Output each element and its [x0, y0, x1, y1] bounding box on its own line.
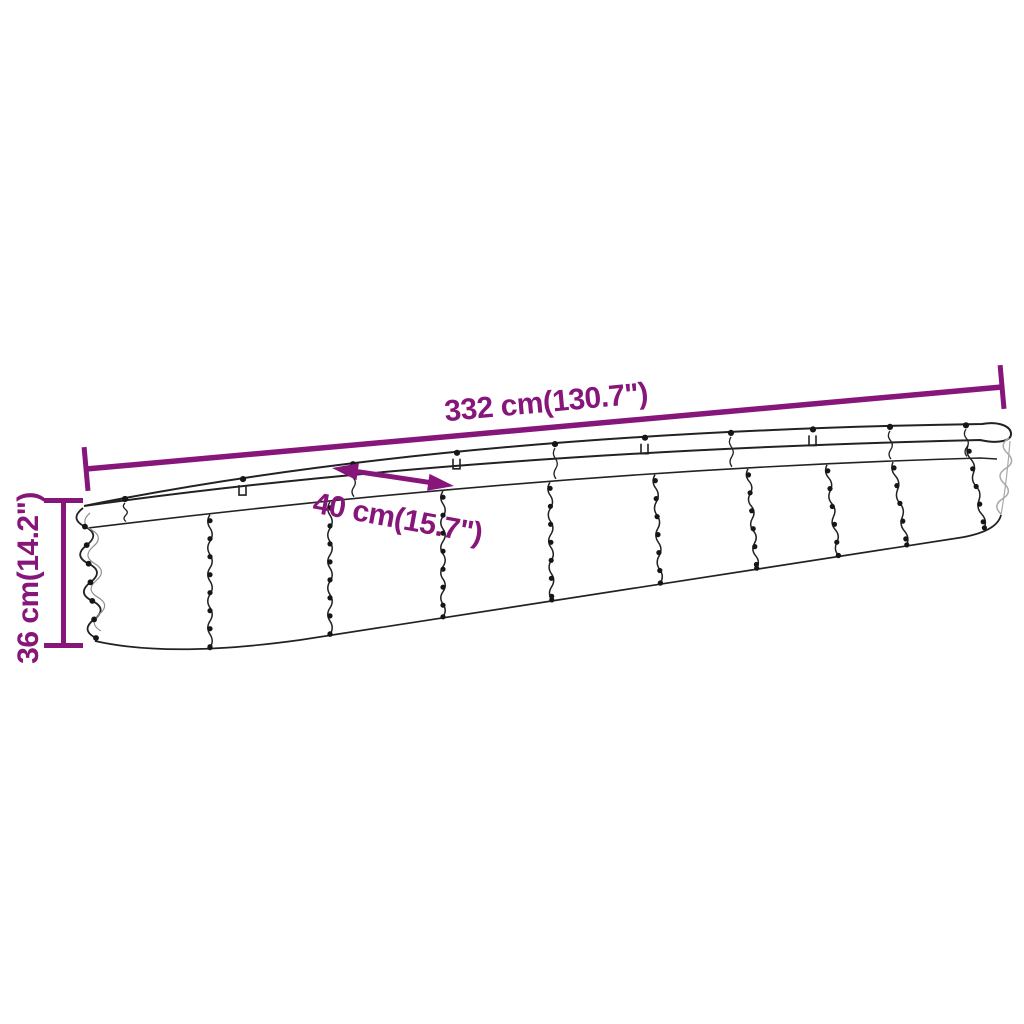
length-dimension-cap-left [84, 447, 88, 491]
length-dimension-cap-right [1000, 365, 1004, 409]
product-dimension-diagram: 332 cm(130.7") 40 cm(15.7") 36 cm(14.2") [0, 0, 1024, 1024]
height-dimension: 36 cm(14.2") [12, 492, 83, 664]
height-label: 36 cm(14.2") [12, 492, 45, 664]
